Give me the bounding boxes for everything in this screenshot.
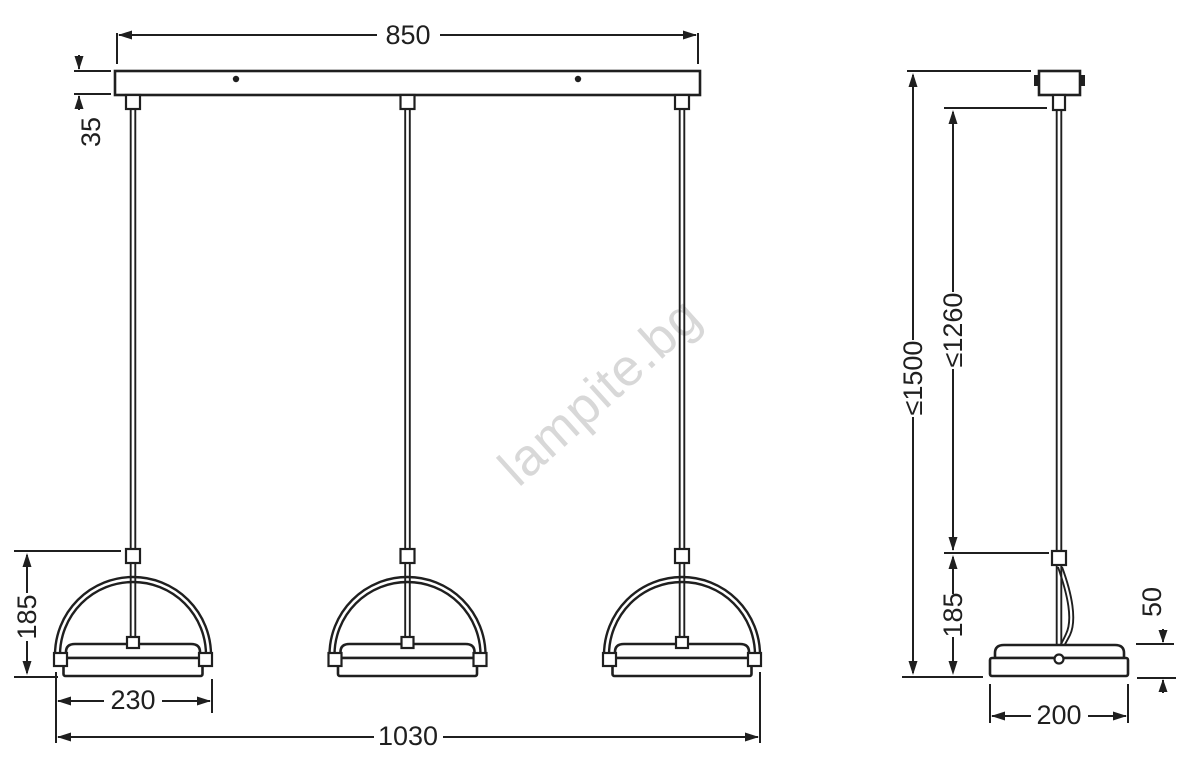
dim-label-35: 35	[76, 117, 106, 147]
technical-drawing-page: lampite.bg	[0, 0, 1191, 775]
dimension-overall-width: 1030	[57, 672, 760, 751]
pendant-lamp-dimension-drawing: lampite.bg	[0, 0, 1191, 775]
ceiling-bar	[115, 71, 700, 109]
dimension-bar-length: 850	[117, 20, 698, 64]
dim-label-1500: ≤1500	[898, 341, 928, 416]
dimension-head-width: 230	[56, 672, 212, 743]
dimension-shade-height: 50	[1136, 587, 1176, 693]
dim-label-50: 50	[1137, 587, 1167, 617]
dimension-overall-height: ≤1500	[898, 71, 1031, 677]
cord-entry-knob	[1055, 655, 1064, 664]
suspension-cord-left	[131, 108, 136, 551]
dim-label-1030: 1030	[378, 721, 438, 751]
dimension-suspension-length: ≤1260	[938, 108, 1049, 553]
cord-grip-right	[675, 95, 689, 109]
dimension-shade-depth: 200	[990, 684, 1128, 730]
mounting-hole-left	[233, 76, 239, 82]
side-view: ≤1500 ≤1260 185 50	[898, 71, 1176, 730]
cord-grip-middle	[401, 95, 415, 109]
cord-connector	[1052, 551, 1066, 565]
cord-grip-left	[126, 95, 140, 109]
suspension-cord-middle	[405, 108, 410, 551]
dimension-bar-height: 35	[74, 55, 111, 147]
lamp-head-left	[54, 549, 212, 676]
lamp-head-middle	[329, 549, 487, 676]
dim-label-850: 850	[385, 20, 430, 50]
dim-label-200: 200	[1036, 700, 1081, 730]
side-shade	[990, 645, 1128, 676]
lamp-head-right	[603, 549, 761, 676]
dimension-head-height-side: 185	[938, 555, 968, 675]
mounting-hole-right	[575, 76, 581, 82]
dim-label-185-front: 185	[12, 594, 42, 639]
side-canopy	[1034, 71, 1085, 110]
watermark-text: lampite.bg	[488, 287, 713, 497]
dim-label-185-side: 185	[938, 592, 968, 637]
cable-loop	[1058, 567, 1073, 651]
dim-label-230: 230	[110, 685, 155, 715]
canopy-neck	[1053, 95, 1065, 110]
dim-label-1260: ≤1260	[938, 293, 968, 368]
